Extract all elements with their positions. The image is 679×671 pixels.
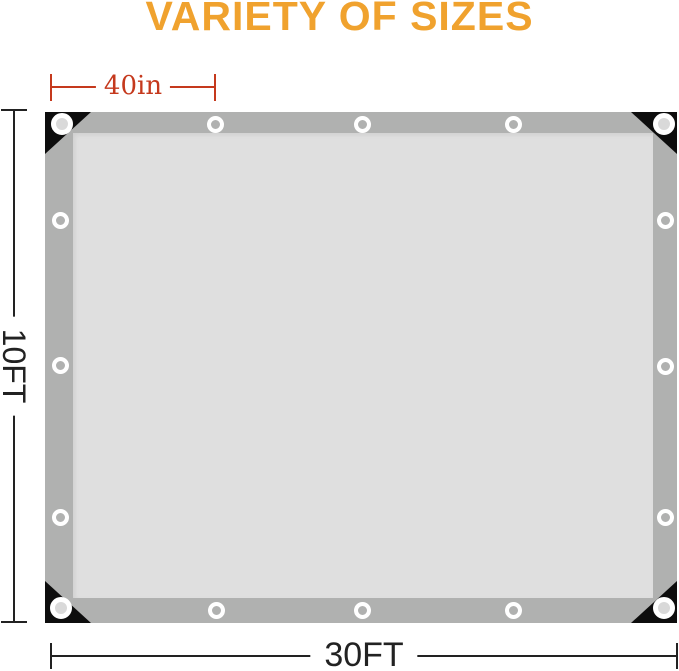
- height-label: 10FT: [0, 317, 32, 416]
- grommet: [653, 597, 675, 619]
- height-measure: 10FT: [1, 109, 27, 623]
- grommet: [657, 509, 674, 526]
- measure-tick-right: [676, 643, 678, 669]
- grommet: [354, 602, 371, 619]
- measure-tick-left: [50, 74, 52, 101]
- width-label: 30FT: [310, 636, 417, 671]
- grommet-spacing-label: 40in: [96, 72, 170, 100]
- measure-tick-top: [1, 109, 27, 111]
- grommet: [52, 509, 69, 526]
- width-measure: 30FT: [50, 643, 678, 669]
- page-title: VARIETY OF SIZES: [0, 0, 679, 40]
- product-size-diagram: VARIETY OF SIZES 40in 10FT: [0, 0, 679, 671]
- grommet: [354, 116, 371, 133]
- grommet: [505, 116, 522, 133]
- grommet: [207, 116, 224, 133]
- tarp-inner-surface: [73, 133, 653, 598]
- grommet: [52, 212, 69, 229]
- measure-tick-bottom: [1, 621, 27, 623]
- grommet: [51, 113, 73, 135]
- grommet: [52, 357, 69, 374]
- grommet: [505, 602, 522, 619]
- tarp-graphic: [45, 112, 677, 623]
- grommet: [50, 597, 72, 619]
- grommet: [657, 358, 674, 375]
- measure-tick-right: [214, 74, 216, 101]
- grommet: [208, 602, 225, 619]
- grommet: [653, 113, 675, 135]
- grommet-spacing-measure: 40in: [50, 74, 216, 101]
- grommet: [657, 212, 674, 229]
- measure-tick-left: [50, 643, 52, 669]
